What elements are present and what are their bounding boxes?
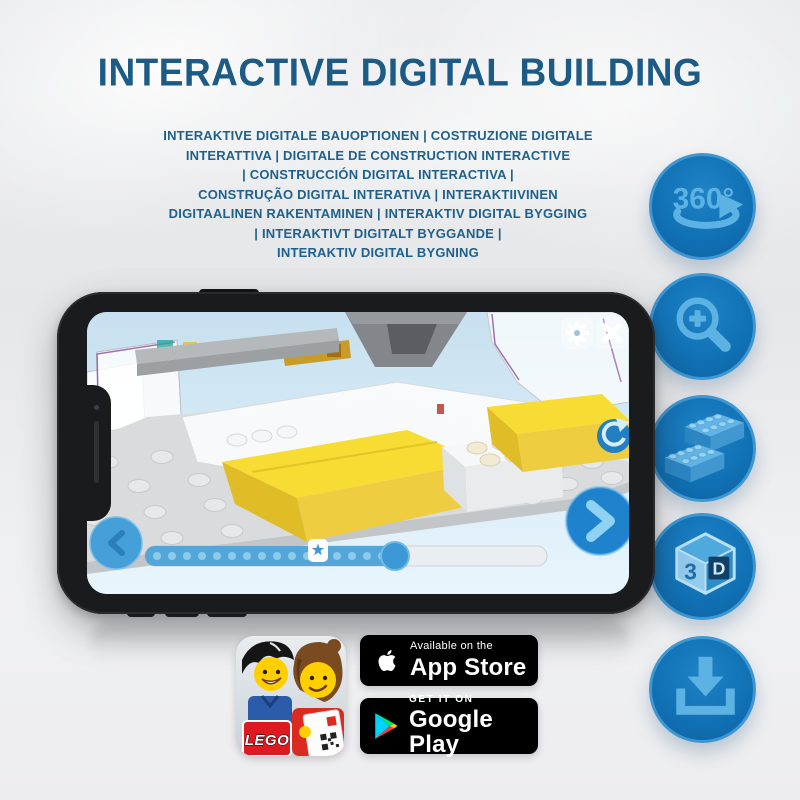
- 360-rotation-icon: 360°: [652, 156, 759, 263]
- subtitle-line: DIGITAALINEN RAKENTAMINEN | INTERAKTIV D…: [98, 204, 658, 224]
- phone-body: [57, 292, 655, 614]
- feature-zoom-icon: [649, 273, 756, 380]
- page-title: INTERACTIVE DIGITAL BUILDING: [0, 51, 800, 95]
- phone-screen: [87, 312, 629, 594]
- close-button[interactable]: [597, 318, 627, 348]
- cube-3-label: 3: [684, 558, 697, 584]
- lego-logo: LEGO: [243, 721, 291, 756]
- 3d-cube-icon: 3 D: [652, 516, 759, 623]
- app-store-name: App Store: [410, 655, 526, 680]
- feature-360-rotation-icon: 360°: [649, 153, 756, 260]
- phone-notch: [85, 385, 111, 521]
- lego-app-icon-art: LEGO: [236, 636, 346, 756]
- slider-thumb[interactable]: [381, 542, 409, 570]
- multilingual-subtitle: INTERAKTIVE DIGITALE BAUOPTIONEN | COSTR…: [98, 126, 658, 263]
- google-play-icon: [373, 712, 399, 740]
- feature-download-icon: [649, 636, 756, 743]
- zoom-in-icon: [652, 276, 759, 383]
- subtitle-line: CONSTRUÇÃO DIGITAL INTERATIVA | INTERAKT…: [98, 185, 658, 205]
- phone: [57, 292, 655, 614]
- feature-3d-icon: 3 D: [649, 513, 756, 620]
- 360-label: 360°: [673, 183, 734, 216]
- gear-icon: [565, 321, 589, 345]
- speaker-slit: [94, 421, 99, 483]
- subtitle-line: | INTERAKTIVT DIGITALT BYGGANDE |: [98, 224, 658, 244]
- google-play-badge[interactable]: GET IT ON Google Play: [360, 698, 538, 754]
- subtitle-line: INTERAKTIVE DIGITALE BAUOPTIONEN | COSTR…: [98, 126, 658, 146]
- settings-button[interactable]: [562, 318, 592, 348]
- lego-builder-app-screen: [87, 312, 629, 594]
- cube-d-label: D: [712, 558, 725, 578]
- front-camera: [94, 405, 99, 410]
- google-play-name: Google Play: [409, 707, 538, 757]
- subtitle-line: | CONSTRUCCIÓN DIGITAL INTERACTIVA |: [98, 165, 658, 185]
- star-marker: [308, 539, 328, 562]
- back-button[interactable]: [90, 517, 142, 569]
- subtitle-line: INTERATTIVA | DIGITALE DE CONSTRUCTION I…: [98, 146, 658, 166]
- subtitle-line: INTERAKTIV DIGITAL BYGNING: [98, 243, 658, 263]
- brick-stack-icon: [652, 398, 759, 505]
- lego-logo-text: LEGO: [245, 732, 290, 749]
- apple-icon: [373, 645, 400, 676]
- next-step-button[interactable]: [566, 487, 629, 555]
- app-store-tagline: Available on the: [410, 641, 526, 653]
- lego-app-icon: LEGO: [236, 636, 346, 756]
- app-store-badge[interactable]: Available on the App Store: [360, 635, 538, 686]
- feature-bricks-icon: [649, 395, 756, 502]
- google-play-tagline: GET IT ON: [409, 695, 538, 706]
- download-icon: [652, 639, 759, 746]
- slider-fill: [145, 546, 397, 566]
